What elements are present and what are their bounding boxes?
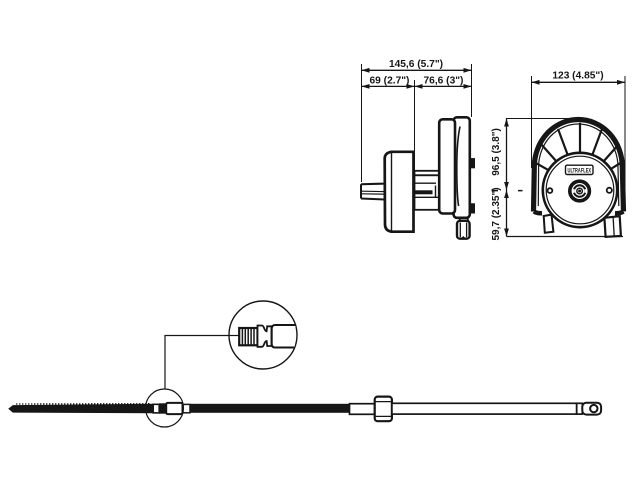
- svg-text:123 (4.85"): 123 (4.85"): [552, 71, 603, 82]
- svg-text:76,6 (3"): 76,6 (3"): [424, 75, 464, 86]
- svg-text:145,6 (5.7"): 145,6 (5.7"): [389, 59, 443, 70]
- svg-text:69 (2.7"): 69 (2.7"): [370, 75, 410, 86]
- svg-text:59,7 (2.35"): 59,7 (2.35"): [491, 187, 502, 240]
- svg-text:96,5 (3.8"): 96,5 (3.8"): [491, 128, 502, 176]
- svg-text:ULTRAFLEX: ULTRAFLEX: [568, 169, 592, 175]
